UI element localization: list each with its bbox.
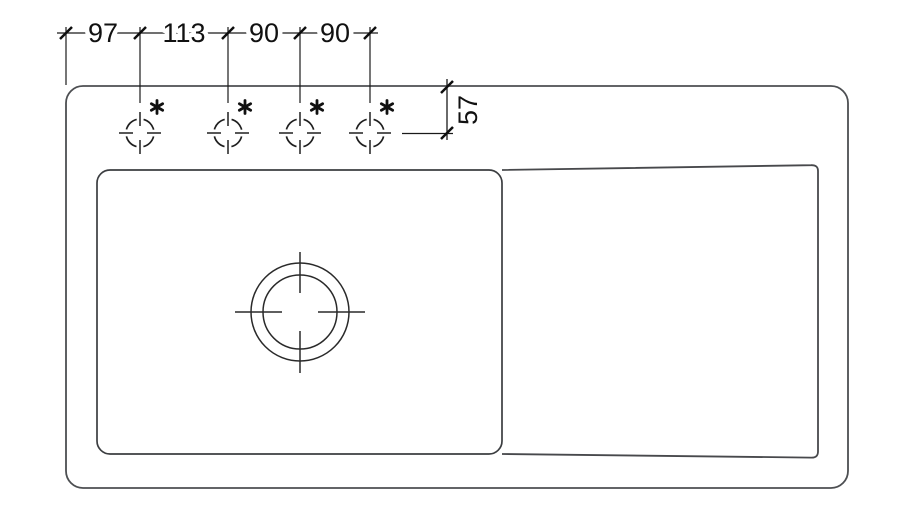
asterisk-icon: [239, 101, 250, 114]
dimension-label-vertical: 57: [453, 95, 483, 125]
asterisk-icon: [311, 101, 322, 114]
tap-hole: [119, 101, 163, 155]
bowl-outline: [97, 170, 502, 454]
dimension-label: 90: [249, 18, 279, 48]
asterisk-icon: [381, 101, 392, 114]
tap-holes: [119, 101, 393, 155]
drainboard-outline: [502, 165, 818, 457]
dimension-label: 113: [162, 18, 205, 48]
technical-drawing-canvas: 97 113 90 90 57: [0, 0, 921, 527]
tap-hole: [279, 101, 323, 155]
vertical-dimension: 57: [402, 79, 483, 140]
dimension-label: 90: [320, 18, 350, 48]
sink-drawing: 97 113 90 90 57: [0, 0, 921, 527]
tap-hole: [349, 101, 393, 155]
sink-outer-outline: [66, 86, 848, 488]
tap-hole: [207, 101, 251, 155]
horizontal-dimension-chain: 97 113 90 90: [57, 18, 378, 103]
dimension-label: 97: [88, 18, 118, 48]
asterisk-icon: [151, 101, 162, 114]
drain-hole: [235, 252, 365, 373]
